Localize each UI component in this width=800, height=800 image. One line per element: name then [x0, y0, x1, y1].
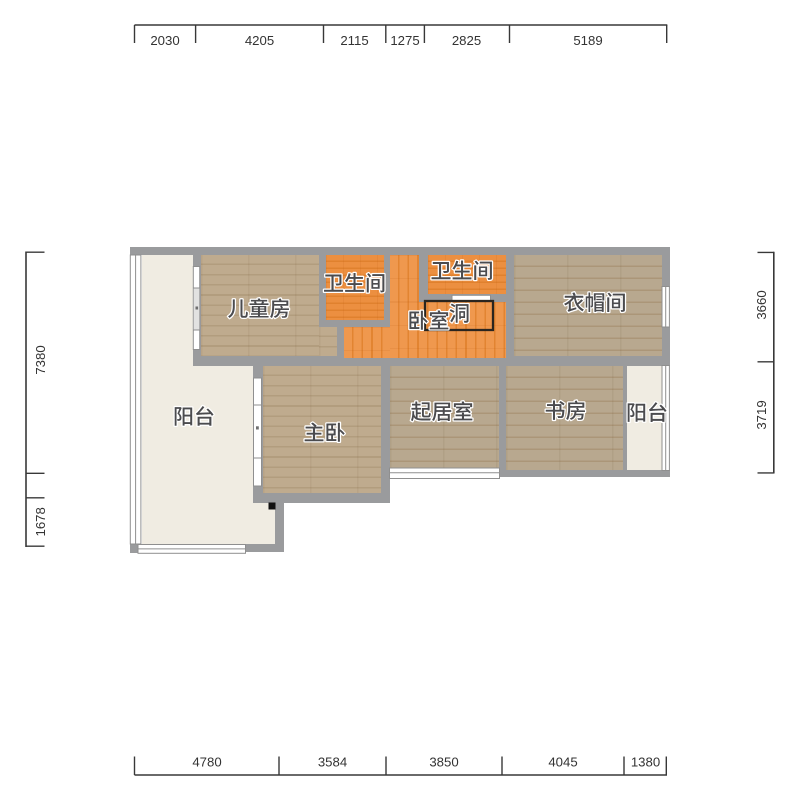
svg-text:2825: 2825 [452, 33, 481, 48]
svg-text:2030: 2030 [150, 33, 179, 48]
svg-text:3850: 3850 [429, 754, 458, 769]
svg-text:4045: 4045 [548, 754, 577, 769]
svg-text:1678: 1678 [33, 507, 48, 536]
svg-text:3719: 3719 [754, 400, 769, 429]
svg-text:2115: 2115 [340, 33, 368, 48]
svg-text:5189: 5189 [573, 33, 602, 48]
svg-text:3584: 3584 [318, 754, 347, 769]
svg-text:1380: 1380 [631, 754, 660, 769]
svg-text:4780: 4780 [192, 754, 221, 769]
svg-text:4205: 4205 [245, 33, 274, 48]
svg-text:7380: 7380 [33, 345, 48, 374]
svg-text:1275: 1275 [390, 33, 419, 48]
svg-text:3660: 3660 [754, 290, 769, 319]
